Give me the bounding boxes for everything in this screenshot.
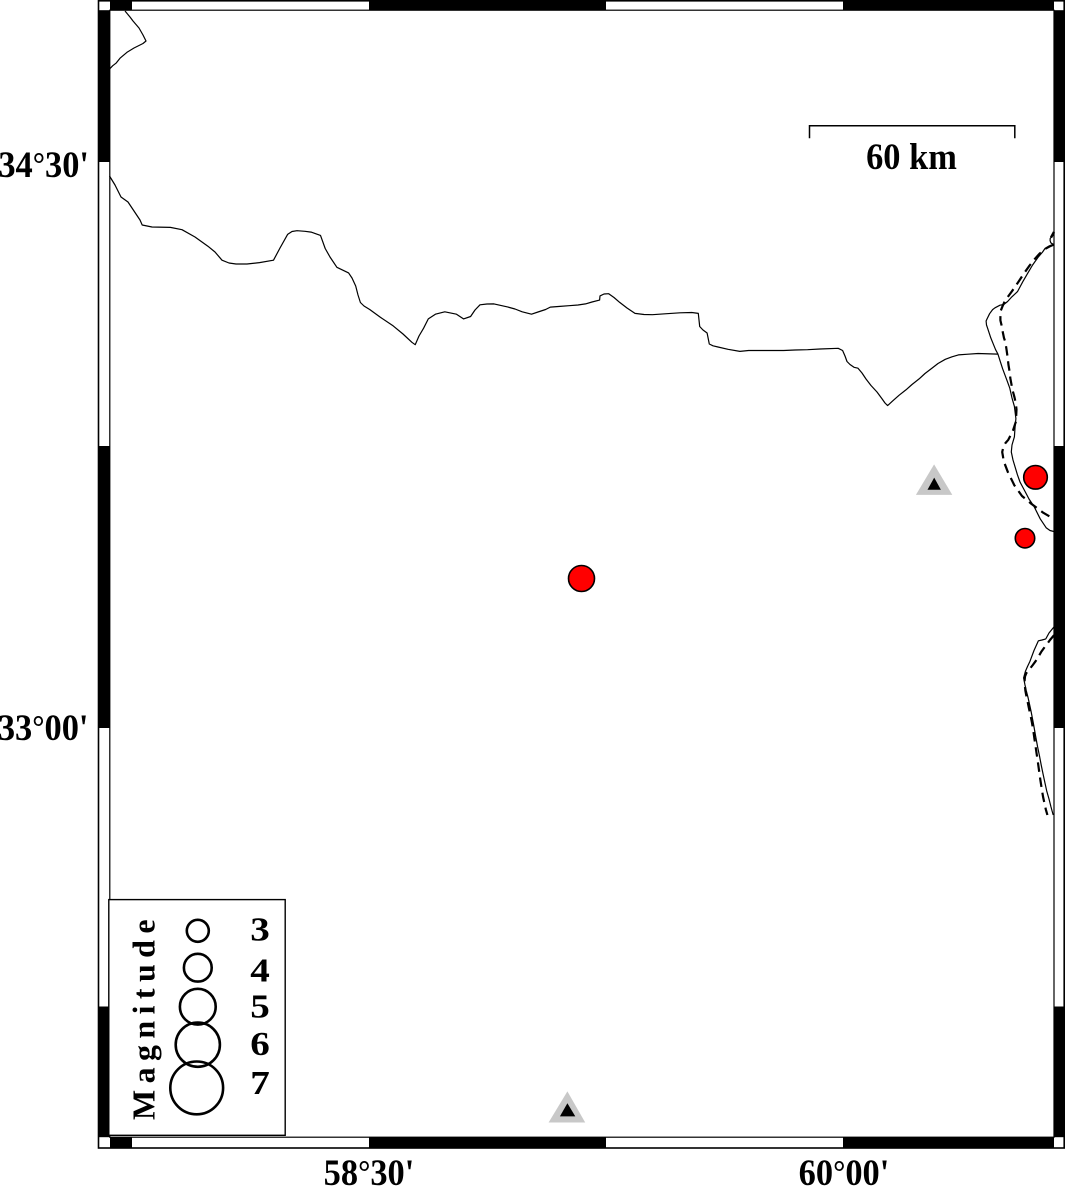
svg-text:4: 4 (250, 951, 270, 989)
svg-text:3: 3 (250, 910, 270, 948)
svg-text:7: 7 (250, 1064, 270, 1102)
svg-text:60°00': 60°00' (799, 1152, 890, 1186)
svg-text:6: 6 (250, 1025, 270, 1063)
svg-text:Magnitude: Magnitude (126, 913, 162, 1120)
svg-text:33°00': 33°00' (0, 707, 89, 748)
svg-text:34°30': 34°30' (0, 144, 89, 185)
svg-text:60 km: 60 km (866, 136, 957, 177)
svg-text:58°30': 58°30' (324, 1152, 415, 1186)
svg-text:5: 5 (250, 987, 270, 1025)
